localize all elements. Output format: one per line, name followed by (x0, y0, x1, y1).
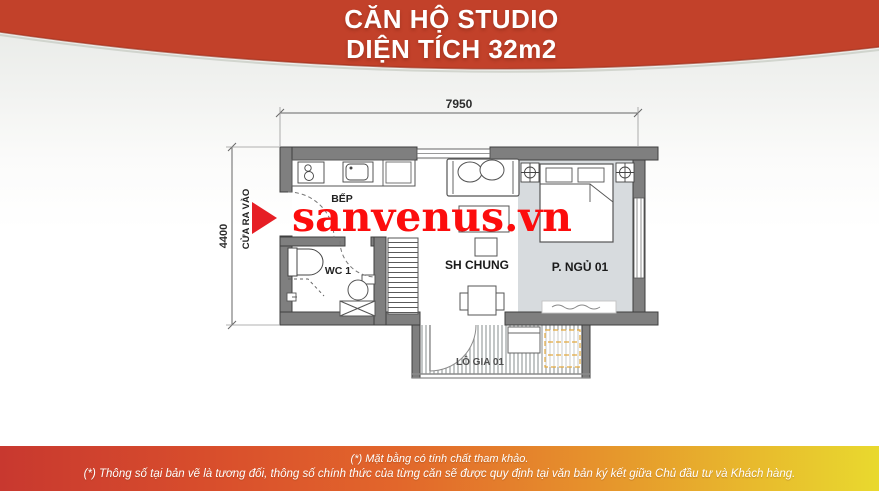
vanity-icon (340, 301, 375, 316)
footer-line2: (*) Thông số tại bản vẽ là tương đối, th… (0, 465, 879, 480)
dimension-height-label: 4400 (218, 224, 230, 248)
wardrobe (388, 238, 418, 314)
column-symbol-left (521, 163, 539, 182)
wall-fixture-icon (287, 293, 297, 301)
bathtub-icon (288, 248, 323, 276)
bedroom-label: P. NGỦ 01 (552, 259, 609, 274)
window-top (417, 149, 490, 158)
dimension-left (226, 143, 280, 329)
dimension-width-label: 7950 (446, 97, 473, 111)
stove-icon (298, 162, 324, 183)
wall-loggia-left (412, 325, 420, 378)
sofa (447, 159, 519, 196)
wall-wc-right (374, 237, 386, 325)
wall-left-upper (280, 147, 292, 192)
drying-rack (545, 330, 580, 367)
wall-bottom-right (505, 312, 658, 325)
floor-plan: 7950 4400 CỬA RA VÀO (0, 0, 879, 491)
window-right (634, 198, 644, 278)
column-symbol-right (616, 163, 634, 182)
loggia-railing (412, 374, 590, 378)
loggia-label: LÔ GIA 01 (456, 355, 504, 368)
flyer-page: CĂN HỘ STUDIO DIỆN TÍCH 32m2 (0, 0, 879, 491)
watermark-text: sanvenus.vn (292, 197, 572, 238)
dimension-top (276, 107, 642, 146)
entrance-label: CỬA RA VÀO (240, 189, 252, 249)
footer-line1: (*) Mặt bằng có tính chất tham khảo. (0, 446, 879, 465)
wall-top-right (490, 147, 658, 160)
kitchen-area (292, 160, 415, 186)
wc-label: WC 1 (325, 265, 351, 277)
kitchen-cabinet (386, 162, 411, 183)
wall-loggia-right (582, 325, 590, 378)
footer-disclaimer: (*) Mặt bằng có tính chất tham khảo. (*)… (0, 446, 879, 491)
sink-icon (343, 162, 373, 182)
washing-machine (508, 327, 540, 353)
bedroom-rug (542, 301, 616, 313)
living-label: SH CHUNG (445, 258, 509, 272)
wall-top-left (280, 147, 417, 160)
entrance-arrow-icon (252, 202, 277, 234)
